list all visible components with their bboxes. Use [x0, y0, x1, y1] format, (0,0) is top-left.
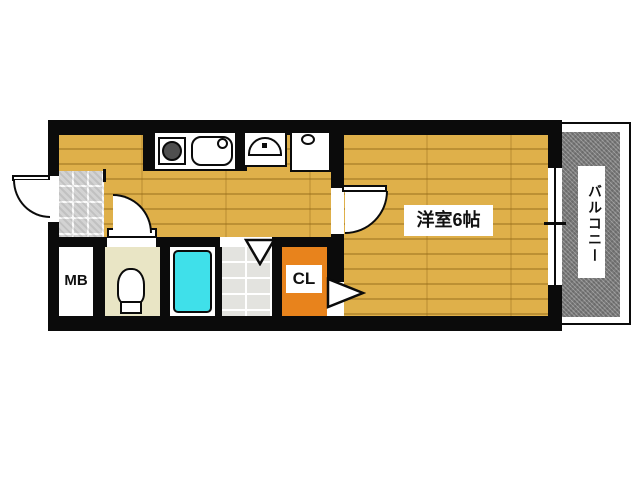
faucet-icon [217, 138, 228, 149]
window-glass-line [554, 168, 556, 285]
counter-stub-left [143, 133, 153, 171]
floor-plan: MB CL 洋室6帖 バルコニー [0, 0, 640, 480]
meter-box-label: MB [59, 272, 93, 289]
washbasin-drain [262, 143, 267, 148]
entry-door-swing-icon [13, 180, 50, 218]
balcony-label: バルコニー [578, 166, 605, 278]
toilet-door-opening [107, 237, 156, 247]
window-center-tick [544, 222, 566, 225]
entry-genkan-floor [59, 171, 104, 237]
western-room-label: 洋室6帖 [404, 205, 493, 236]
wall-bath-washroom [215, 237, 222, 316]
wall-bottom [48, 316, 562, 331]
washroom-door-icon [244, 238, 276, 266]
washing-machine-drain [301, 134, 315, 145]
stove-burner [162, 141, 182, 161]
closet-label: CL [286, 265, 322, 293]
wall-left [48, 120, 59, 331]
wall-mb-toilet [93, 237, 105, 316]
entry-step-icon [103, 169, 106, 182]
toilet-tank [120, 301, 142, 314]
bathtub-icon [173, 250, 212, 313]
toilet-icon [117, 268, 145, 305]
room-door-leaf [342, 185, 387, 192]
room-door-opening [331, 188, 344, 234]
closet-door-icon [326, 277, 366, 309]
wall-toilet-bath [160, 237, 170, 316]
